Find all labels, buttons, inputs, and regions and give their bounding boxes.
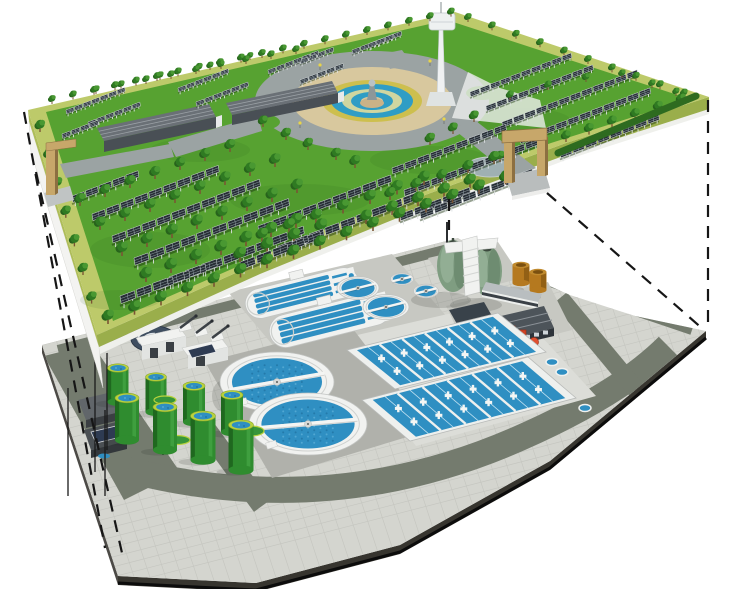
water-texture-dot — [288, 433, 290, 435]
water-texture-dot — [282, 366, 284, 368]
water-texture-dot — [295, 415, 297, 417]
tank-shade — [108, 368, 112, 402]
water-texture-dot — [282, 415, 284, 417]
tree-foliage — [335, 148, 341, 154]
water-texture-dot — [257, 370, 259, 372]
water-texture-dot — [288, 408, 290, 410]
tree-foliage — [288, 218, 295, 225]
tree-foliage — [493, 151, 499, 157]
tree — [48, 95, 56, 104]
tree-foliage — [684, 89, 688, 93]
water-glint — [162, 406, 164, 408]
tank-bottom — [513, 280, 530, 286]
water-glint — [196, 386, 198, 388]
tree-foliage — [270, 222, 277, 229]
building-door — [150, 348, 158, 358]
tree-foliage — [239, 247, 246, 254]
water-texture-dot — [282, 391, 284, 393]
water-texture-dot — [282, 375, 284, 377]
hub-pivot — [401, 278, 403, 280]
tree-foliage — [220, 240, 227, 247]
water-texture-dot — [288, 364, 290, 366]
lamp-light — [442, 117, 445, 120]
tree-foliage — [250, 52, 254, 56]
water-texture-dot — [301, 364, 303, 366]
tree-foliage — [145, 267, 152, 274]
clarifier-small — [337, 277, 379, 300]
water-glint — [120, 368, 122, 370]
tank-shade — [115, 398, 119, 440]
tree-foliage — [171, 224, 178, 231]
water-texture-dot — [251, 377, 253, 379]
tree-foliage — [319, 235, 326, 242]
water-texture-dot — [319, 419, 321, 421]
water-texture-dot — [307, 440, 309, 442]
aerator-unit — [486, 345, 488, 353]
tree-foliage — [399, 207, 406, 214]
tree-foliage — [124, 207, 130, 213]
gate-post-side — [545, 136, 548, 176]
water-texture-dot — [251, 394, 253, 396]
water-texture-dot — [288, 373, 290, 375]
tree-foliage — [354, 155, 360, 161]
tree-foliage — [296, 179, 303, 186]
tree-foliage — [367, 26, 371, 30]
tree-foliage — [425, 198, 432, 205]
water-texture-dot — [301, 438, 303, 440]
water-texture-dot — [319, 431, 321, 433]
tree-foliage — [396, 180, 403, 187]
water-texture-dot — [301, 442, 303, 444]
gate-post — [537, 136, 545, 176]
water-texture-dot — [270, 396, 272, 398]
tree-foliage — [315, 209, 322, 216]
tree-foliage — [121, 242, 128, 249]
water-texture-dot — [288, 429, 290, 431]
water-texture-dot — [288, 389, 290, 391]
building-window — [534, 333, 539, 337]
water-texture-dot — [295, 406, 297, 408]
aerator-unit — [537, 385, 539, 393]
tree-foliage — [115, 81, 119, 85]
tree-foliage — [245, 231, 252, 238]
tree-foliage — [391, 201, 398, 208]
water-glint — [238, 424, 240, 426]
water-texture-dot — [326, 433, 328, 435]
tree-foliage — [240, 263, 247, 270]
tank-highlight — [170, 407, 174, 450]
tree-foliage — [246, 55, 250, 59]
water-texture-dot — [326, 442, 328, 444]
aerator-unit — [380, 354, 382, 362]
water-texture-dot — [251, 381, 253, 383]
clarifier-small — [391, 273, 414, 285]
tank-shade — [153, 407, 157, 450]
water-glint — [229, 394, 231, 396]
aerator-unit — [512, 392, 514, 400]
water-texture-dot — [301, 412, 303, 414]
water-texture-dot — [276, 368, 278, 370]
tree-foliage — [468, 13, 472, 17]
water-texture-dot — [288, 385, 290, 387]
tree-foliage — [369, 190, 376, 197]
inlet-pond — [98, 454, 110, 459]
grid-line — [637, 192, 740, 589]
water-texture-dot — [270, 387, 272, 389]
tank-water — [194, 413, 213, 420]
water-texture-dot — [313, 442, 315, 444]
water-glint — [234, 395, 236, 397]
water-texture-dot — [276, 394, 278, 396]
tank-bottom — [153, 445, 177, 454]
water-texture-dot — [313, 433, 315, 435]
tree-foliage — [146, 233, 153, 240]
tree-foliage — [266, 254, 273, 261]
water-texture-dot — [301, 373, 303, 375]
tree-foliage — [213, 272, 220, 279]
tank-shade — [183, 386, 187, 422]
tree-foliage — [274, 153, 280, 159]
water-texture-dot — [326, 412, 328, 414]
tree-foliage — [283, 44, 287, 48]
tree — [90, 86, 98, 95]
tree-foliage — [99, 216, 105, 222]
water-glint — [167, 407, 169, 409]
tank-water — [224, 392, 240, 398]
tree-foliage — [134, 300, 141, 307]
tree-foliage — [346, 226, 353, 233]
water-glint — [115, 367, 117, 369]
tank-water — [110, 365, 126, 371]
tree-foliage — [389, 187, 395, 193]
tank-highlight — [132, 398, 136, 440]
water-texture-dot — [295, 387, 297, 389]
clarifier-small — [414, 284, 439, 298]
tree-foliage — [65, 206, 71, 212]
tree-foliage — [452, 189, 459, 196]
tree-foliage — [547, 81, 551, 85]
water-texture-dot — [301, 408, 303, 410]
tree-foliage — [365, 210, 372, 217]
tree-foliage — [271, 50, 275, 54]
water-texture-dot — [295, 436, 297, 438]
tank-water — [186, 383, 202, 389]
water-texture-dot — [282, 406, 284, 408]
grid-line — [695, 177, 740, 576]
tree-foliage — [262, 115, 267, 120]
water-glint — [129, 398, 131, 400]
tree-foliage — [320, 218, 327, 225]
water-texture-dot — [270, 379, 272, 381]
tree-foliage — [452, 122, 457, 127]
tree-foliage — [52, 95, 56, 99]
screw-pump-motor — [226, 324, 229, 327]
water-texture-dot — [295, 383, 297, 385]
aerator-unit — [441, 356, 443, 364]
tree-foliage — [221, 60, 225, 64]
tree-foliage — [204, 148, 210, 154]
water-texture-dot — [326, 425, 328, 427]
hub-pivot — [307, 423, 309, 425]
water-texture-dot — [301, 417, 303, 419]
tree-foliage — [657, 101, 662, 106]
tree-foliage — [199, 180, 205, 186]
tree-foliage — [221, 206, 228, 213]
tree-foliage — [676, 88, 680, 92]
water-texture-dot — [332, 440, 334, 442]
lamp-light — [428, 59, 431, 62]
hub-pivot — [357, 287, 359, 289]
aerator-unit — [397, 404, 399, 412]
water-texture-dot — [270, 370, 272, 372]
tree-foliage — [174, 189, 180, 195]
building-gable — [216, 115, 222, 128]
water-texture-dot — [295, 375, 297, 377]
tree-foliage — [249, 162, 255, 168]
water-texture-dot — [288, 412, 290, 414]
water-glint — [191, 385, 193, 387]
water-texture-dot — [288, 368, 290, 370]
water-texture-dot — [301, 385, 303, 387]
water-texture-dot — [313, 408, 315, 410]
tree-foliage — [636, 72, 640, 76]
water-texture-dot — [313, 429, 315, 431]
tree-foliage — [430, 12, 434, 16]
building-door — [196, 356, 205, 366]
screw-pump-motor — [210, 319, 213, 322]
clarifier-small — [363, 295, 409, 320]
gate-post — [46, 148, 55, 195]
water-texture-dot — [282, 370, 284, 372]
tree-foliage — [104, 184, 110, 190]
water-texture-dot — [319, 415, 321, 417]
tree-foliage — [295, 213, 302, 220]
water-texture-dot — [282, 436, 284, 438]
tree-foliage — [509, 91, 513, 95]
grid-line — [681, 181, 740, 580]
water-texture-dot — [264, 389, 266, 391]
water-texture-dot — [251, 398, 253, 400]
aerator-unit — [497, 378, 499, 386]
hub-pivot — [385, 306, 387, 308]
tree-foliage — [171, 70, 175, 74]
water-texture-dot — [295, 427, 297, 429]
tank-water — [156, 404, 174, 411]
water-texture-dot — [276, 364, 278, 366]
water-texture-dot — [332, 427, 334, 429]
exploded-view-treatment-plant-illustration — [0, 0, 740, 589]
water-texture-dot — [332, 406, 334, 408]
water-texture-dot — [295, 391, 297, 393]
tank-top-inner — [533, 270, 543, 274]
tree-foliage — [160, 291, 167, 298]
water-texture-dot — [276, 389, 278, 391]
tank-shade — [146, 377, 150, 412]
tree-foliage — [210, 62, 214, 66]
aerator-unit — [493, 327, 495, 335]
aerator-unit — [462, 405, 464, 413]
building-gable — [338, 91, 344, 103]
building-door — [166, 342, 174, 352]
tree-foliage — [586, 73, 590, 77]
water-texture-dot — [257, 375, 259, 377]
water-texture-dot — [295, 370, 297, 372]
tree-foliage — [660, 80, 664, 84]
tree-foliage — [612, 63, 616, 67]
screw-pump-motor — [194, 314, 197, 317]
tree-foliage — [516, 30, 520, 34]
building-window — [543, 331, 548, 335]
water-texture-dot — [264, 398, 266, 400]
water-texture-dot — [326, 408, 328, 410]
illustration-canvas — [0, 0, 740, 589]
tree-foliage — [417, 192, 424, 199]
water-texture-dot — [270, 366, 272, 368]
aerator-unit — [464, 350, 466, 358]
water-texture-dot — [257, 396, 259, 398]
water-texture-dot — [251, 364, 253, 366]
tree-foliage — [415, 178, 421, 184]
tree-foliage — [246, 197, 253, 204]
water-texture-dot — [313, 417, 315, 419]
tank-bottom — [229, 465, 254, 475]
tree-foliage — [224, 171, 230, 177]
tree-foliage — [179, 157, 185, 163]
water-texture-dot — [264, 394, 266, 396]
water-texture-dot — [251, 389, 253, 391]
tower-base — [426, 92, 456, 106]
water-texture-dot — [307, 431, 309, 433]
tank-highlight — [247, 425, 251, 470]
water-texture-dot — [270, 375, 272, 377]
tank-water — [232, 422, 251, 429]
lamp-light — [318, 63, 321, 66]
water-texture-dot — [251, 368, 253, 370]
water-texture-dot — [301, 381, 303, 383]
tree-foliage — [261, 228, 268, 235]
gate-post — [504, 140, 512, 183]
tree-foliage — [196, 65, 200, 69]
water-texture-dot — [295, 410, 297, 412]
water-texture-dot — [301, 368, 303, 370]
water-texture-dot — [307, 406, 309, 408]
water-texture-dot — [282, 410, 284, 412]
tree-foliage — [170, 258, 177, 265]
water-texture-dot — [257, 400, 259, 402]
tree — [132, 77, 140, 86]
tree — [69, 90, 77, 99]
tree-foliage — [262, 49, 266, 53]
water-texture-dot — [264, 368, 266, 370]
water-texture-dot — [264, 364, 266, 366]
tree-foliage — [478, 179, 485, 186]
tree-foliage — [304, 40, 308, 44]
tank-bottom — [191, 455, 216, 465]
water-glint — [205, 416, 207, 418]
water-texture-dot — [288, 442, 290, 444]
tree-foliage — [634, 108, 639, 113]
water-texture-dot — [319, 427, 321, 429]
water-texture-dot — [313, 412, 315, 414]
water-texture-dot — [282, 419, 284, 421]
tree — [111, 81, 119, 90]
water-texture-dot — [319, 436, 321, 438]
water-texture-dot — [307, 415, 309, 417]
water-texture-dot — [332, 415, 334, 417]
grid-line — [652, 188, 740, 587]
aerator-unit — [487, 398, 489, 406]
water-texture-dot — [288, 421, 290, 423]
water-texture-dot — [326, 417, 328, 419]
water-texture-dot — [295, 431, 297, 433]
water-texture-dot — [257, 379, 259, 381]
tree-foliage — [146, 75, 150, 79]
aerator-unit — [522, 372, 524, 380]
water-glint — [200, 415, 202, 417]
tree-foliage — [342, 199, 349, 206]
water-texture-dot — [332, 431, 334, 433]
tree-foliage — [187, 282, 194, 289]
aerator-unit — [447, 391, 449, 399]
water-texture-dot — [332, 410, 334, 412]
tree-foliage — [423, 171, 430, 178]
water-texture-dot — [319, 440, 321, 442]
tree-foliage — [409, 17, 413, 21]
water-texture-dot — [326, 438, 328, 440]
tree-foliage — [611, 116, 616, 121]
water-texture-dot — [282, 431, 284, 433]
tree-foliage — [564, 47, 568, 51]
gas-holder-tank — [530, 269, 547, 293]
tank-shade — [229, 425, 233, 470]
aerator-unit — [403, 349, 405, 357]
tree-foliage — [499, 151, 504, 156]
outlet-basin — [556, 369, 568, 376]
tree-foliage — [73, 90, 77, 94]
water-texture-dot — [301, 429, 303, 431]
tree-foliage — [178, 67, 182, 71]
tree-foliage — [451, 8, 455, 12]
outlet-basin — [546, 359, 558, 366]
aerator-unit — [413, 418, 415, 426]
tree-foliage — [91, 291, 97, 297]
water-texture-dot — [295, 440, 297, 442]
aerator-unit — [471, 332, 473, 340]
aerator-unit — [438, 411, 440, 419]
aerator-unit — [422, 398, 424, 406]
tree-foliage — [285, 128, 291, 134]
water-texture-dot — [282, 440, 284, 442]
water-texture-dot — [257, 366, 259, 368]
tree-foliage — [79, 193, 85, 199]
aerator-unit — [509, 339, 511, 347]
tank-top-inner — [516, 263, 526, 267]
tree-foliage — [271, 188, 278, 195]
tree-foliage — [229, 139, 235, 145]
gate-post-side — [512, 140, 515, 183]
aerator-unit — [396, 367, 398, 375]
lamp-light — [298, 121, 301, 124]
water-texture-dot — [307, 410, 309, 412]
tree-foliage — [293, 245, 300, 252]
tree-foliage — [82, 263, 88, 269]
tank-shade — [191, 416, 195, 460]
tree-foliage — [325, 35, 329, 39]
aerator-unit — [426, 343, 428, 351]
tree-foliage — [136, 77, 140, 81]
water-glint — [153, 376, 155, 378]
tree-foliage — [588, 123, 593, 128]
